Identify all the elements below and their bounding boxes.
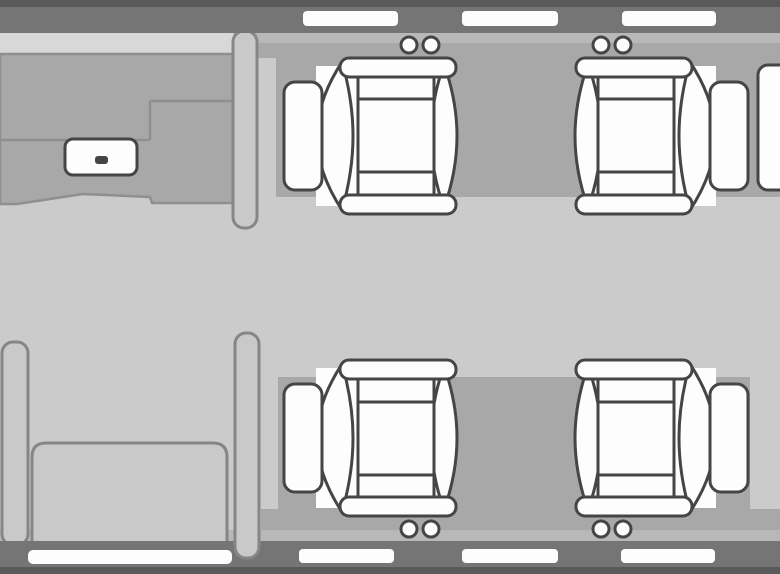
seat-footrest — [710, 82, 748, 190]
window-top-1 — [303, 11, 398, 26]
window-top-2 — [462, 11, 558, 26]
seat-footrest — [284, 82, 322, 190]
forward-partition — [233, 31, 257, 228]
headrest-knob-right — [615, 37, 631, 53]
side-console — [2, 342, 28, 545]
cabin-floorplan-drawing — [0, 0, 780, 574]
headrest-knob-left — [423, 37, 439, 53]
entry-door — [28, 550, 232, 564]
seat-cushion — [358, 379, 434, 497]
seat-cushion — [598, 77, 674, 195]
bottom-wall-edge — [0, 567, 780, 574]
headrest-knob-right — [401, 37, 417, 53]
seat-armrest-top — [340, 497, 456, 516]
galley-sink-drain — [95, 156, 108, 164]
window-top-3 — [622, 11, 716, 26]
top-wall-edge — [0, 0, 780, 7]
seat-armrest-top — [576, 58, 692, 77]
headrest-knob-right — [615, 521, 631, 537]
seat-armrest-bottom — [340, 195, 456, 214]
seat-armrest-bottom — [340, 360, 456, 379]
seat-cushion — [358, 77, 434, 195]
top-sidewall-step — [257, 43, 780, 58]
headrest-knob-left — [423, 521, 439, 537]
galley-wall-ledge — [0, 33, 233, 54]
window-bottom-2 — [462, 549, 558, 563]
window-bottom-3 — [621, 549, 715, 563]
seat-armrest-bottom — [576, 195, 692, 214]
headrest-knob-left — [593, 37, 609, 53]
seat-armrest-bottom — [576, 360, 692, 379]
bench-seat — [32, 443, 227, 545]
window-bottom-1 — [299, 549, 394, 563]
seat-footrest — [284, 384, 322, 492]
seat-cushion — [598, 379, 674, 497]
headrest-knob-left — [593, 521, 609, 537]
seat-armrest-top — [576, 497, 692, 516]
partial-cabinet-right-edge — [758, 65, 780, 190]
seat-footrest — [710, 384, 748, 492]
cabin-floorplan — [0, 0, 780, 574]
headrest-knob-right — [401, 521, 417, 537]
aft-partition — [235, 333, 259, 558]
galley-counter — [0, 54, 233, 204]
seat-armrest-top — [340, 58, 456, 77]
